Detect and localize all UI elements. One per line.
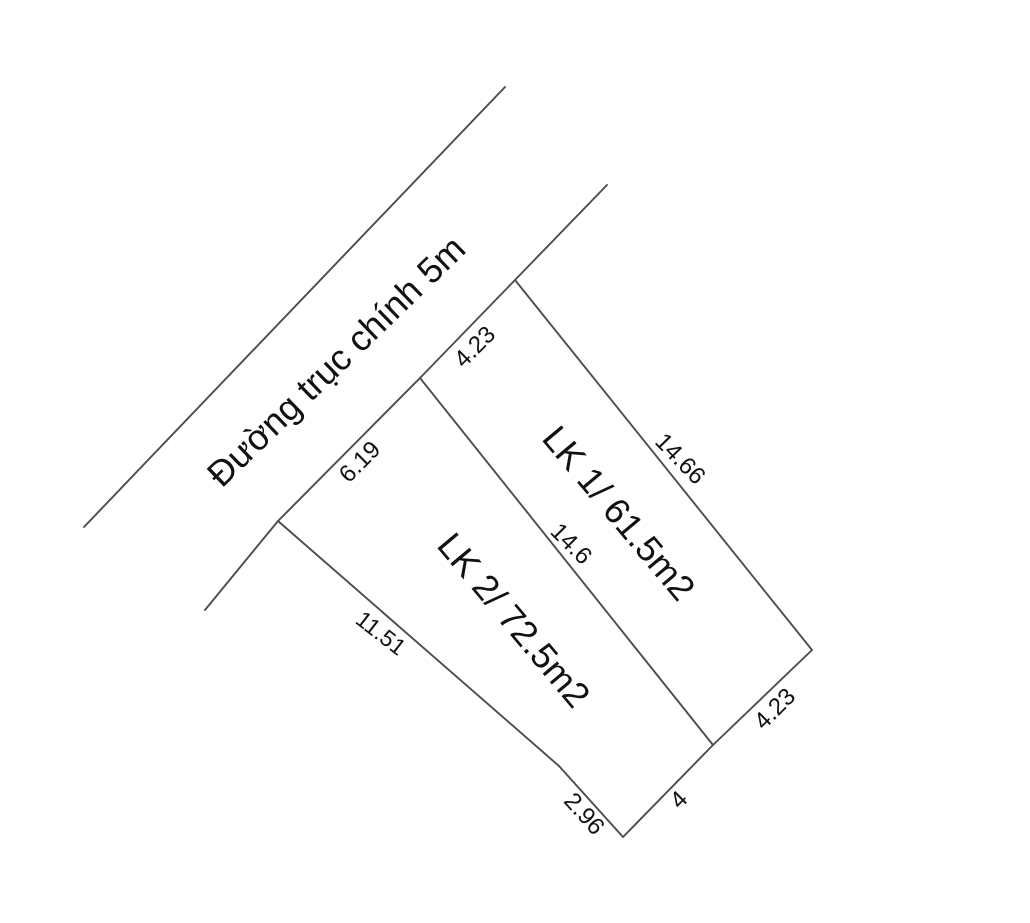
svg-text:Đường trục chính 5m: Đường trục chính 5m	[199, 228, 473, 495]
svg-text:4.23: 4.23	[749, 683, 801, 735]
svg-text:4: 4	[665, 786, 694, 815]
svg-text:6.19: 6.19	[334, 436, 386, 488]
svg-text:2.96: 2.96	[558, 788, 609, 841]
svg-text:14.6: 14.6	[545, 518, 597, 570]
svg-text:4.23: 4.23	[449, 321, 501, 373]
svg-text:11.51: 11.51	[351, 606, 411, 661]
